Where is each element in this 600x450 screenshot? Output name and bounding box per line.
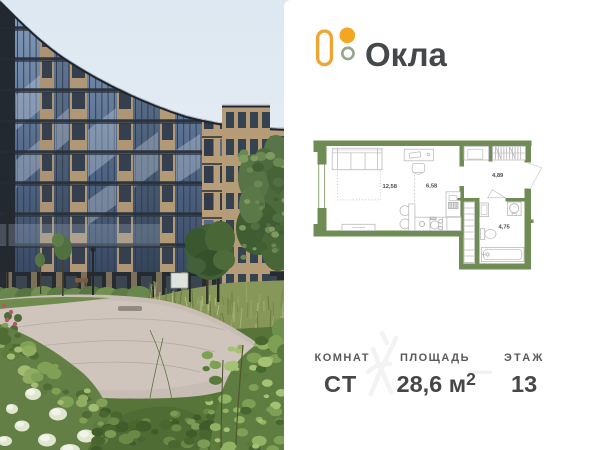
svg-text:4,75: 4,75 [499, 224, 511, 230]
svg-text:12,58: 12,58 [382, 184, 397, 190]
svg-text:4,89: 4,89 [492, 173, 504, 179]
svg-text:6,58: 6,58 [426, 183, 438, 189]
